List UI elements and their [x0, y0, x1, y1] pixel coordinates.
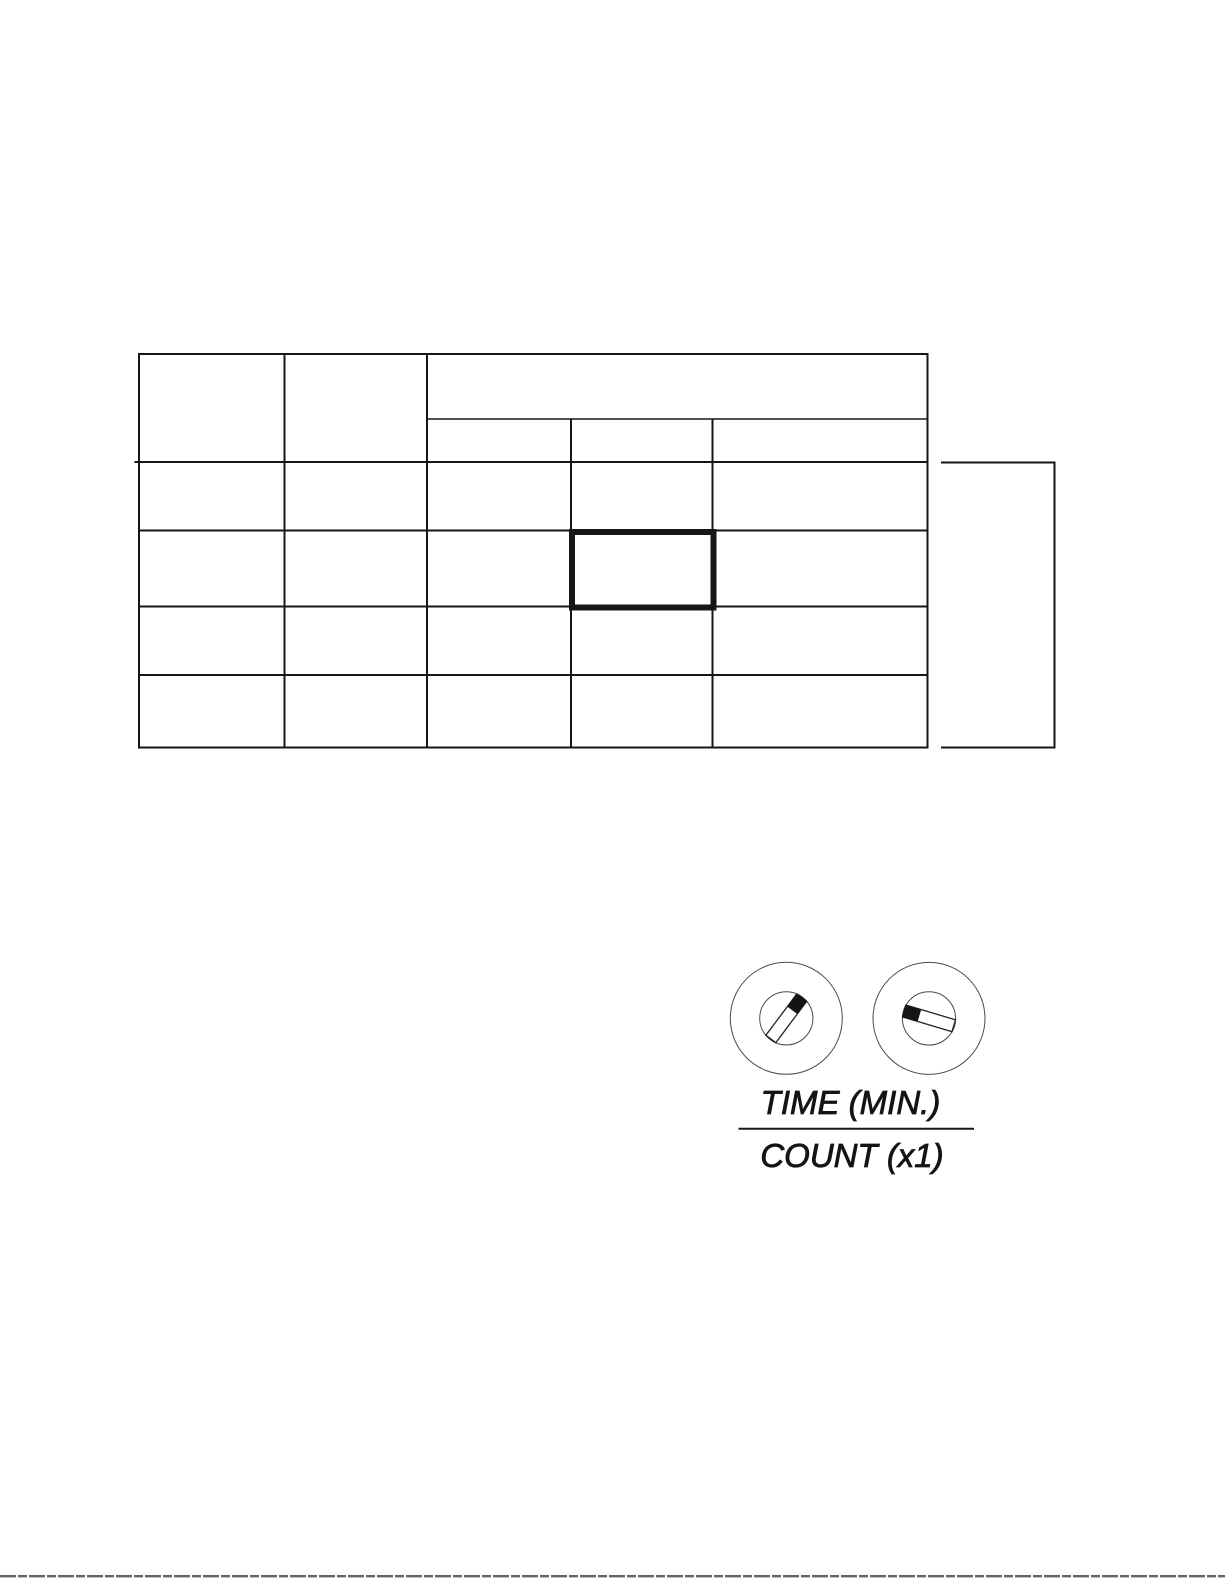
svg-text:COUNT (x1): COUNT (x1)	[760, 1137, 943, 1174]
svg-text:TIME (MIN.): TIME (MIN.)	[761, 1084, 941, 1121]
